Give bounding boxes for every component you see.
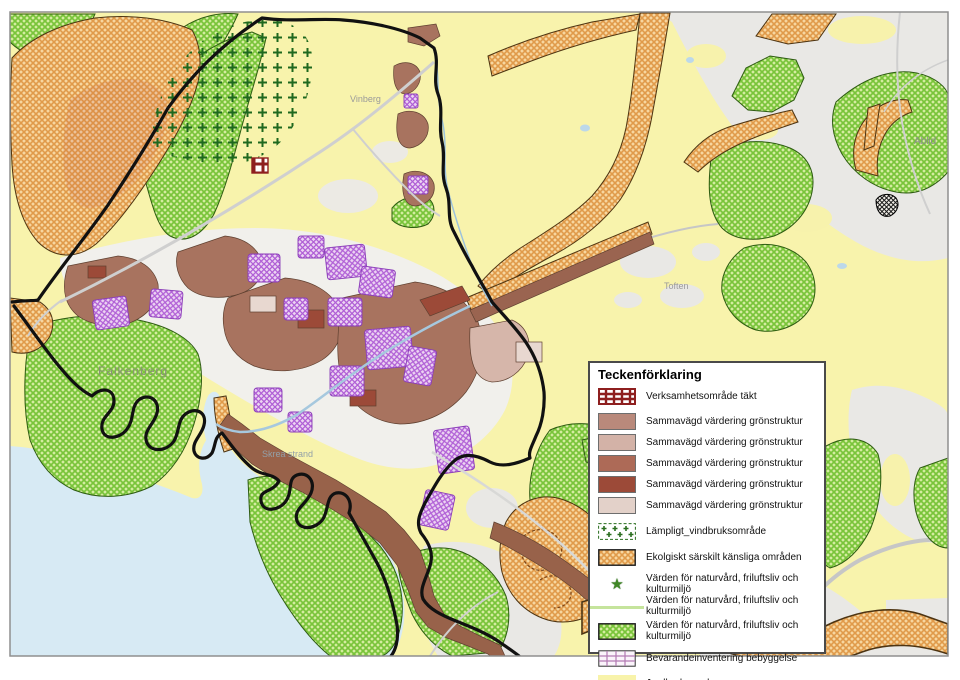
legend-item-label: Lämpligt_vindbruksområde (646, 526, 766, 537)
nature-area-swatch-icon (598, 623, 636, 640)
farmland-swatch-icon (598, 675, 636, 680)
legend-item-label: Ekolgiskt särskilt känsliga områden (646, 552, 802, 563)
gronstruktur2-swatch-icon (598, 434, 636, 451)
legend-item-label: Värden för naturvård, friluftsliv och ku… (646, 595, 816, 617)
legend-item-varden-area: Värden för naturvård, friluftsliv och ku… (598, 620, 816, 642)
legend-item-label: Värden för naturvård, friluftsliv och ku… (646, 573, 816, 595)
map-page: Falkenberg Skrea strand Ablid Vinberg To… (0, 0, 960, 680)
quarry-area (252, 158, 268, 173)
star-icon: ★ (598, 576, 636, 593)
gronstruktur4-swatch-icon (598, 476, 636, 493)
legend-item-gron5: Sammavägd värdering grönstruktur (598, 497, 816, 514)
legend-item-label: Sammavägd värdering grönstruktur (646, 458, 803, 469)
hatched-area (876, 194, 898, 216)
legend-item-label: Sammavägd värdering grönstruktur (646, 416, 803, 427)
gronstruktur1-swatch-icon (598, 413, 636, 430)
legend-item-label: Sammavägd värdering grönstruktur (646, 437, 803, 448)
legend-item-label: Sammavägd värdering grönstruktur (646, 479, 803, 490)
legend-item-jordbruk: Jordbruksmark (598, 675, 816, 680)
legend-item-gron3: Sammavägd värdering grönstruktur (598, 455, 816, 472)
legend-item-label: Värden för naturvård, friluftsliv och ku… (646, 620, 816, 642)
legend-item-label: Verksamhetsområde täkt (646, 391, 757, 402)
legend-item-eko: Ekolgiskt särskilt känsliga områden (598, 549, 816, 566)
legend: Teckenförklaring Verksamhetsområde täkt … (588, 361, 826, 654)
quarry-swatch-icon (598, 388, 636, 405)
gronstruktur5-swatch-icon (598, 497, 636, 514)
legend-item-gron4: Sammavägd värdering grönstruktur (598, 476, 816, 493)
preservation-swatch-icon (598, 650, 636, 667)
legend-item-gron1: Sammavägd värdering grönstruktur (598, 413, 816, 430)
legend-item-vindbruk: Lämpligt_vindbruksområde (598, 523, 816, 540)
legend-title: Teckenförklaring (598, 367, 816, 382)
legend-item-varden-star: ★ Värden för naturvård, friluftsliv och … (598, 573, 816, 595)
legend-item-takt: Verksamhetsområde täkt (598, 388, 816, 405)
wind-area-swatch-icon (598, 523, 636, 540)
legend-item-label: Bevarandeinventering bebyggelse (646, 653, 797, 664)
green-line-icon (598, 598, 636, 615)
gronstruktur3-swatch-icon (598, 455, 636, 472)
legend-item-varden-line: Värden för naturvård, friluftsliv och ku… (598, 595, 816, 617)
legend-item-gron2: Sammavägd värdering grönstruktur (598, 434, 816, 451)
legend-item-label: Sammavägd värdering grönstruktur (646, 500, 803, 511)
legend-item-bevarande: Bevarandeinventering bebyggelse (598, 650, 816, 667)
ecological-swatch-icon (598, 549, 636, 566)
